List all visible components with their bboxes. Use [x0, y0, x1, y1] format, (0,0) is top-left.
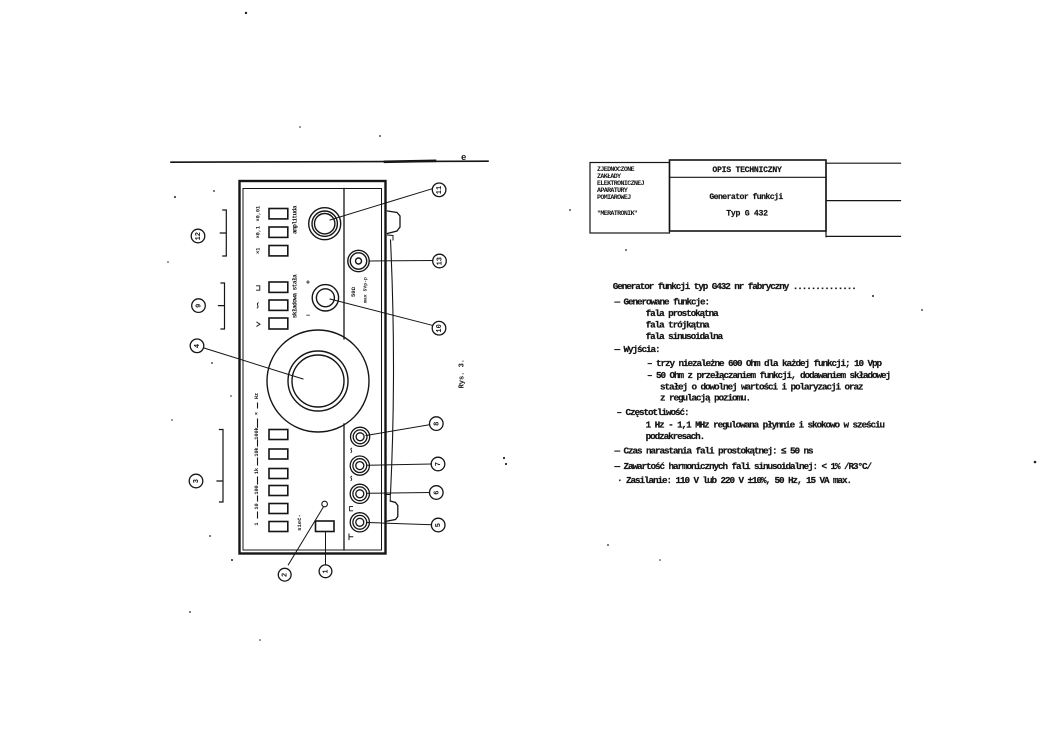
svg-text:10: 10 [436, 324, 444, 332]
svg-text:Hz: Hz [254, 393, 260, 399]
svg-text:– Częstotliwość:: – Częstotliwość: [617, 407, 689, 418]
svg-text:max 5Vp-p: max 5Vp-p [363, 277, 369, 303]
svg-text:— Generowane funkcje:: — Generowane funkcje: [614, 297, 709, 308]
svg-text:amplituda: amplituda [292, 205, 299, 234]
svg-text:sieć-: sieć- [296, 514, 303, 531]
svg-text:— Zawartość harmonicznych fali: — Zawartość harmonicznych fali sinusoida… [614, 461, 873, 472]
svg-text:100k: 100k [254, 427, 260, 439]
svg-text:· Zasilanie: 110 V lub 220 V: · Zasilanie: 110 V lub 220 V ±10%, 50 Hz… [617, 475, 851, 486]
svg-text:— Czas narastania fali prostok: — Czas narastania fali prostokątnej: ≤ 5… [614, 446, 814, 457]
svg-text:z regulacją poziomu.: z regulacją poziomu. [660, 392, 750, 403]
svg-text:Generator funkcji: Generator funkcji [709, 192, 783, 202]
svg-text:5: 5 [435, 523, 443, 527]
svg-text:11: 11 [436, 186, 444, 194]
svg-text:13: 13 [437, 257, 445, 265]
svg-text:12: 12 [195, 232, 203, 240]
svg-text:1k: 1k [254, 468, 260, 474]
svg-text:OPIS TECHNICZNY: OPIS TECHNICZNY [712, 166, 782, 175]
svg-text:fala trójkątna: fala trójkątna [646, 319, 710, 330]
svg-text:"MERATRONIK": "MERATRONIK" [597, 210, 638, 217]
svg-text:×: × [254, 412, 260, 415]
svg-text:ZJEDNOCZONE: ZJEDNOCZONE [597, 166, 635, 173]
svg-text:8: 8 [433, 422, 441, 426]
svg-text:fala prostokątna: fala prostokątna [646, 308, 719, 319]
svg-text:3: 3 [193, 479, 201, 483]
svg-text:7: 7 [435, 462, 443, 466]
svg-text:1 Hz - 1,1 MHz regulowana płyn: 1 Hz - 1,1 MHz regulowana płynnie i skok… [646, 419, 885, 430]
svg-text:1: 1 [323, 569, 331, 573]
svg-text:– 50 Ohm z przełączaniem funkc: – 50 Ohm z przełączaniem funkcji, dodawa… [647, 370, 890, 381]
svg-text:APARATURY: APARATURY [597, 187, 628, 194]
svg-text:Rys. 3.: Rys. 3. [459, 359, 467, 388]
svg-text:1: 1 [254, 522, 260, 525]
svg-text:100: 100 [254, 485, 260, 494]
svg-text:Generator funkcji typ G432 nr: Generator funkcji typ G432 nr fabryczny … [613, 281, 856, 292]
svg-text:9: 9 [196, 304, 204, 308]
svg-text:składowa stała: składowa stała [292, 274, 299, 318]
svg-text:2: 2 [282, 573, 290, 577]
svg-text:Typ G 432: Typ G 432 [726, 210, 768, 219]
svg-text:fala sinusoidalna: fala sinusoidalna [646, 331, 724, 342]
svg-text:10k: 10k [254, 447, 260, 456]
svg-text:stałej o dowolnej wartości i p: stałej o dowolnej wartości i polaryzacji… [660, 382, 863, 393]
svg-text:POMIAROWEJ: POMIAROWEJ [597, 194, 631, 201]
svg-text:10: 10 [254, 503, 260, 509]
svg-text:+: + [306, 280, 310, 288]
svg-text:e: e [461, 153, 466, 163]
svg-text:×0,1: ×0,1 [256, 226, 262, 238]
svg-text:– trzy niezależne 600 Ohm dla: – trzy niezależne 600 Ohm dla każdej fun… [647, 358, 882, 369]
svg-text:×1: ×1 [256, 248, 262, 254]
svg-text:— Wyjścia:: — Wyjścia: [614, 344, 660, 355]
svg-text:−: − [306, 313, 310, 321]
svg-text:ZAKŁADY: ZAKŁADY [597, 173, 621, 180]
svg-text:4: 4 [194, 344, 202, 348]
svg-text:×0,01: ×0,01 [256, 206, 262, 222]
svg-text:ELEKTRONICZNEJ: ELEKTRONICZNEJ [597, 180, 645, 187]
svg-text:6: 6 [433, 491, 441, 495]
svg-text:50Ω: 50Ω [350, 286, 357, 297]
svg-text:podzakresach.: podzakresach. [646, 431, 705, 442]
